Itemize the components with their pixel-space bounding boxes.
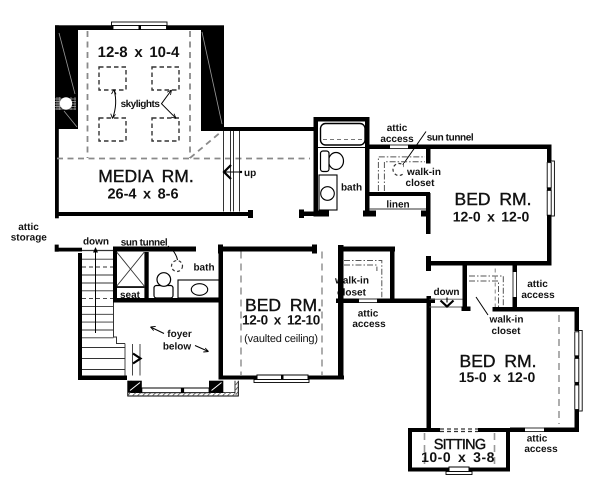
svg-text:down: down: [433, 287, 459, 298]
svg-text:12-0 x 12-10: 12-0 x 12-10: [242, 313, 320, 328]
svg-text:walk-in: walk-in: [406, 167, 441, 178]
svg-text:below: below: [163, 342, 192, 353]
svg-text:(vaulted ceiling): (vaulted ceiling): [244, 333, 318, 345]
svg-text:access: access: [352, 319, 386, 330]
svg-text:up: up: [244, 168, 256, 179]
svg-text:access: access: [380, 134, 414, 145]
svg-text:sun tunnel: sun tunnel: [427, 133, 474, 144]
svg-text:attic: attic: [387, 123, 408, 134]
svg-text:walk-in: walk-in: [489, 315, 524, 326]
svg-text:BED RM.: BED RM.: [455, 189, 532, 209]
svg-text:closet: closet: [492, 326, 522, 337]
svg-text:attic: attic: [358, 309, 379, 320]
svg-text:10-0 x 3-8: 10-0 x 3-8: [421, 449, 495, 465]
svg-text:BED RM.: BED RM.: [460, 351, 537, 371]
svg-text:sun tunnel: sun tunnel: [121, 238, 168, 249]
svg-text:seat: seat: [120, 290, 141, 301]
svg-text:26-4 x 8-6: 26-4 x 8-6: [107, 187, 178, 203]
svg-text:12-0 x 12-0: 12-0 x 12-0: [453, 209, 530, 225]
svg-text:attic: attic: [527, 434, 548, 445]
svg-text:closet: closet: [406, 178, 436, 189]
svg-text:storage: storage: [11, 233, 48, 244]
svg-text:MEDIA RM.: MEDIA RM.: [98, 166, 193, 186]
svg-text:down: down: [83, 237, 109, 248]
svg-text:15-0 x 12-0: 15-0 x 12-0: [459, 369, 536, 385]
svg-text:access: access: [521, 290, 555, 301]
svg-text:skylights: skylights: [121, 99, 161, 110]
svg-text:attic: attic: [527, 279, 548, 290]
svg-text:12-8 x 10-4: 12-8 x 10-4: [98, 44, 180, 61]
svg-text:access: access: [524, 444, 558, 455]
svg-text:attic: attic: [18, 222, 39, 233]
svg-text:bath: bath: [193, 263, 214, 274]
svg-text:bath: bath: [341, 183, 362, 194]
svg-text:foyer: foyer: [167, 329, 192, 340]
